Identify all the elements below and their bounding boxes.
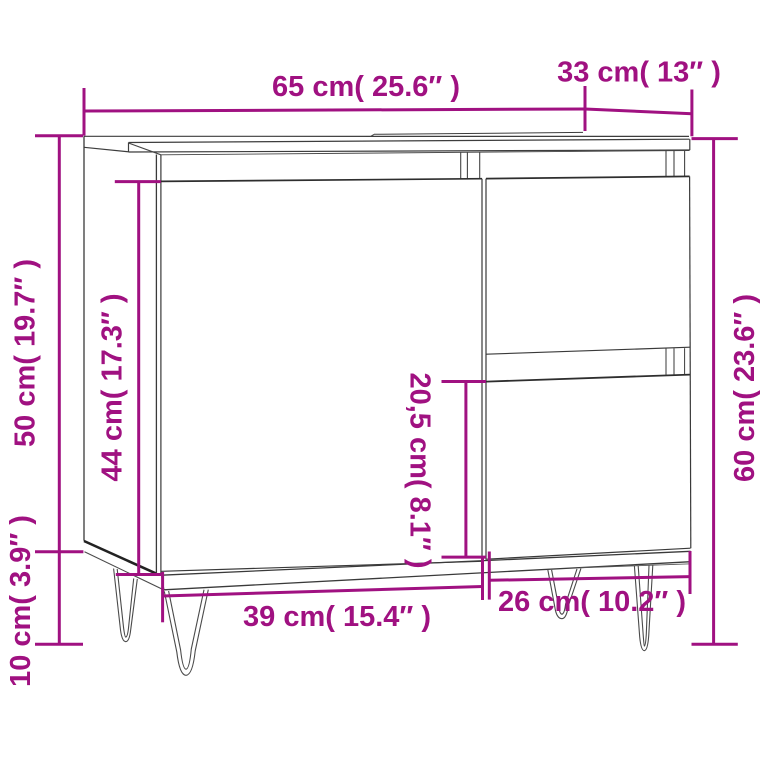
svg-text:50 cm( 19.7″ ): 50 cm( 19.7″ ) xyxy=(10,259,42,447)
svg-text:10 cm( 3.9″ ): 10 cm( 3.9″ ) xyxy=(5,515,37,687)
svg-text:39 cm( 15.4″ ): 39 cm( 15.4″ ) xyxy=(243,601,431,633)
svg-text:65 cm( 25.6″ ): 65 cm( 25.6″ ) xyxy=(272,71,460,103)
svg-text:26 cm( 10.2″ ): 26 cm( 10.2″ ) xyxy=(498,586,686,618)
svg-text:20,5 cm( 8.1″ ): 20,5 cm( 8.1″ ) xyxy=(404,372,436,568)
svg-text:44 cm( 17.3″ ): 44 cm( 17.3″ ) xyxy=(97,294,129,482)
svg-text:33 cm( 13″ ): 33 cm( 13″ ) xyxy=(557,57,721,89)
svg-text:60 cm( 23.6″ ): 60 cm( 23.6″ ) xyxy=(729,294,761,482)
